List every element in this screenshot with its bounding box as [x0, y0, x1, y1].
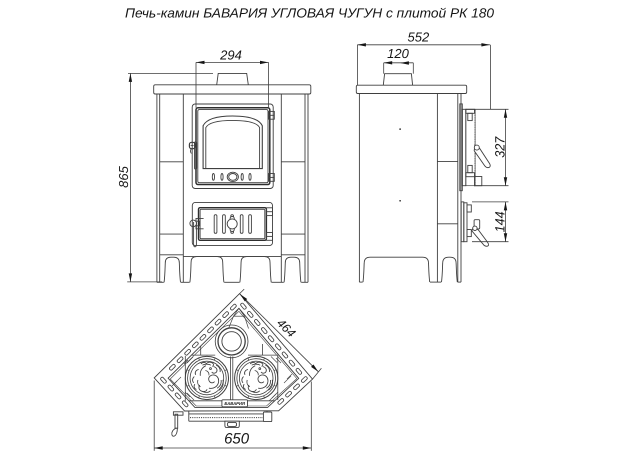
svg-text:Печь-камин БАВАРИЯ УГЛОВАЯ ЧУГ: Печь-камин БАВАРИЯ УГЛОВАЯ ЧУГУН с плито… [125, 6, 495, 21]
svg-text:650: 650 [224, 431, 250, 448]
svg-text:865: 865 [116, 165, 131, 187]
svg-text:327: 327 [492, 136, 507, 157]
svg-text:144: 144 [492, 211, 507, 232]
svg-text:294: 294 [219, 48, 242, 63]
svg-text:120: 120 [387, 46, 409, 61]
svg-text:552: 552 [408, 30, 430, 45]
svg-text:БАВАРИЯ: БАВАРИЯ [224, 401, 246, 406]
